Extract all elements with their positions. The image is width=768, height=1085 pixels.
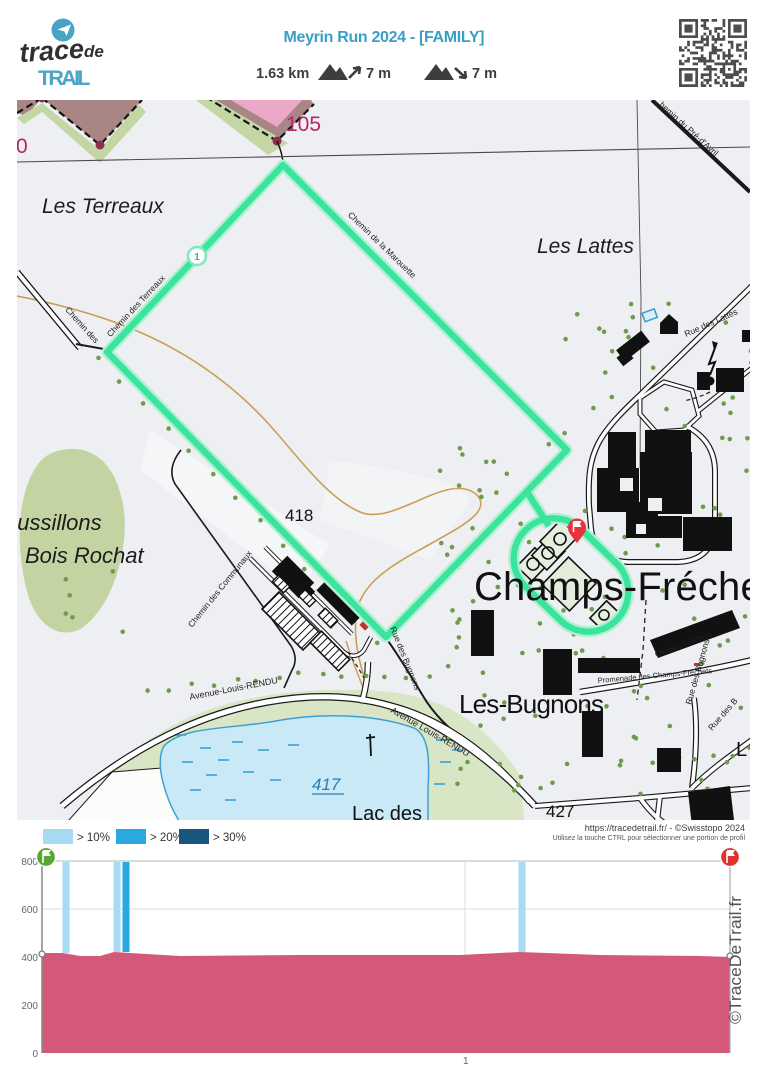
svg-text:Les Terreaux: Les Terreaux: [42, 195, 165, 218]
svg-text:1: 1: [194, 252, 200, 263]
svg-text:©TraceDeTrail.fr: ©TraceDeTrail.fr: [726, 896, 745, 1024]
svg-text:> 10%: > 10%: [77, 832, 110, 844]
svg-text:> 30%: > 30%: [213, 832, 246, 844]
svg-text:7 m: 7 m: [366, 66, 391, 82]
svg-text:Champs-Fréchet: Champs-Fréchet: [474, 565, 768, 609]
svg-text:Les Lattes: Les Lattes: [537, 235, 634, 258]
svg-text:7 m: 7 m: [472, 66, 497, 82]
svg-text:Meyrin Run 2024 - [FAMILY]: Meyrin Run 2024 - [FAMILY]: [284, 29, 485, 46]
svg-text:800: 800: [21, 857, 38, 868]
svg-text:L: L: [736, 739, 747, 761]
svg-text:F: F: [703, 372, 708, 381]
svg-text:427: 427: [546, 802, 574, 821]
svg-text:trace: trace: [18, 34, 84, 68]
svg-text:> 20%: > 20%: [150, 832, 183, 844]
svg-text:105: 105: [286, 113, 321, 136]
svg-text:Bois Rochat: Bois Rochat: [25, 543, 145, 568]
svg-text:400: 400: [21, 953, 38, 964]
svg-text:417: 417: [312, 775, 341, 794]
svg-text:Utilisez la touche CTRL pour s: Utilisez la touche CTRL pour sélectionne…: [553, 835, 746, 842]
svg-text:1: 1: [463, 1056, 469, 1067]
svg-text:Les-Bugnons: Les-Bugnons: [459, 689, 604, 719]
svg-text:0: 0: [16, 135, 28, 158]
svg-text:600: 600: [21, 905, 38, 916]
svg-text:1.63 km: 1.63 km: [256, 66, 309, 82]
svg-text:https://tracedetrail.fr/ - ©Sw: https://tracedetrail.fr/ - ©Swisstopo 20…: [585, 823, 745, 833]
svg-text:de: de: [84, 42, 104, 61]
svg-text:200: 200: [21, 1001, 38, 1012]
svg-text:oussillons: oussillons: [5, 510, 102, 535]
svg-text:418: 418: [285, 506, 313, 525]
svg-text:TRAIL: TRAIL: [38, 66, 91, 90]
svg-text:0: 0: [32, 1049, 38, 1060]
